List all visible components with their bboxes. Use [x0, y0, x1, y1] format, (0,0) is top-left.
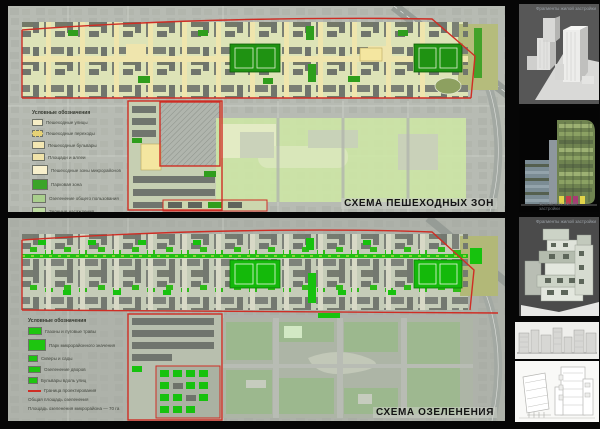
plaza-building	[360, 48, 382, 61]
legend-swatch	[32, 141, 45, 149]
presentation-board: Условные обозначения Пешеходные улицы Пе…	[0, 0, 600, 429]
residential-band	[22, 234, 498, 310]
legend-greening: Условные обозначения Газоны и луговые тр…	[28, 318, 126, 411]
park-area	[223, 318, 473, 418]
legend-item: Зеленые насаждения	[32, 207, 126, 212]
legend-item: Пешеходные бульвары	[32, 141, 126, 149]
legend-swatch-boundary	[28, 390, 41, 392]
legend-swatch	[28, 377, 38, 384]
legend-note: Площадь озеленения микрорайона — 70 га	[28, 406, 126, 411]
legend-swatch	[28, 339, 46, 351]
legend-item: Газоны и луговые травы	[28, 327, 126, 335]
legend-note: Общая площадь озеленения	[28, 397, 126, 402]
stadium	[435, 78, 461, 94]
map1-caption: СХЕМА ПЕШЕХОДНЫХ ЗОН	[341, 198, 497, 209]
map2-caption: СХЕМА ОЗЕЛЕНЕНИЯ	[373, 407, 497, 418]
legend-swatch	[28, 327, 42, 335]
legend-title: Условные обозначения	[32, 110, 126, 116]
legend-item: Пешеходные переходы	[32, 130, 126, 137]
render-axon-towers: Фрагменты жилой застройки	[519, 4, 599, 104]
legend-swatch	[32, 130, 43, 137]
left-blocks	[128, 101, 222, 210]
render-green-elevation: Фрагменты жилой застройки	[519, 108, 599, 212]
legend-title: Условные обозначения	[28, 318, 126, 324]
legend-swatch	[32, 165, 48, 175]
legend-item: Бульвары вдоль улиц	[28, 377, 126, 384]
legend-item: Пешеходные улицы	[32, 119, 126, 126]
dense-green-block	[156, 366, 220, 418]
legend-swatch	[32, 179, 48, 190]
legend-pedestrian: Условные обозначения Пешеходные улицы Пе…	[32, 110, 126, 212]
left-building	[525, 160, 551, 204]
legend-item: Площади и аллеи	[32, 153, 126, 161]
legend-item: Граница проектирования	[28, 388, 126, 393]
legend-swatch	[28, 366, 41, 373]
map-pedestrian-zones: Условные обозначения Пешеходные улицы Пе…	[8, 6, 505, 212]
render-caption: Фрагменты жилой застройки	[539, 201, 579, 211]
legend-swatch	[32, 207, 46, 212]
legend-item: Озеленение общего пользования	[32, 194, 126, 203]
park-zone	[216, 118, 466, 202]
legend-item: Озеленение дворов	[28, 366, 126, 373]
legend-item: Скверы и сады	[28, 355, 126, 362]
legend-item: Парк микрорайонного значения	[28, 339, 126, 351]
legend-item: Парковая зона	[32, 179, 126, 190]
residential-band	[22, 22, 498, 98]
render-sketch-model	[515, 361, 599, 422]
legend-swatch	[32, 153, 45, 161]
render-caption: Фрагменты жилой застройки	[536, 219, 596, 224]
left-blocks	[128, 314, 222, 420]
render-white-massing	[515, 322, 599, 359]
legend-swatch	[32, 119, 43, 126]
legend-swatch	[28, 355, 38, 362]
legend-item: Пешеходные зоны микрорайонов	[32, 165, 126, 175]
render-modular-housing: Фрагменты жилой застройки	[519, 217, 599, 316]
legend-swatch	[32, 194, 46, 203]
map-greening: Условные обозначения Газоны и луговые тр…	[8, 218, 505, 421]
render-caption: Фрагменты жилой застройки	[536, 6, 596, 11]
